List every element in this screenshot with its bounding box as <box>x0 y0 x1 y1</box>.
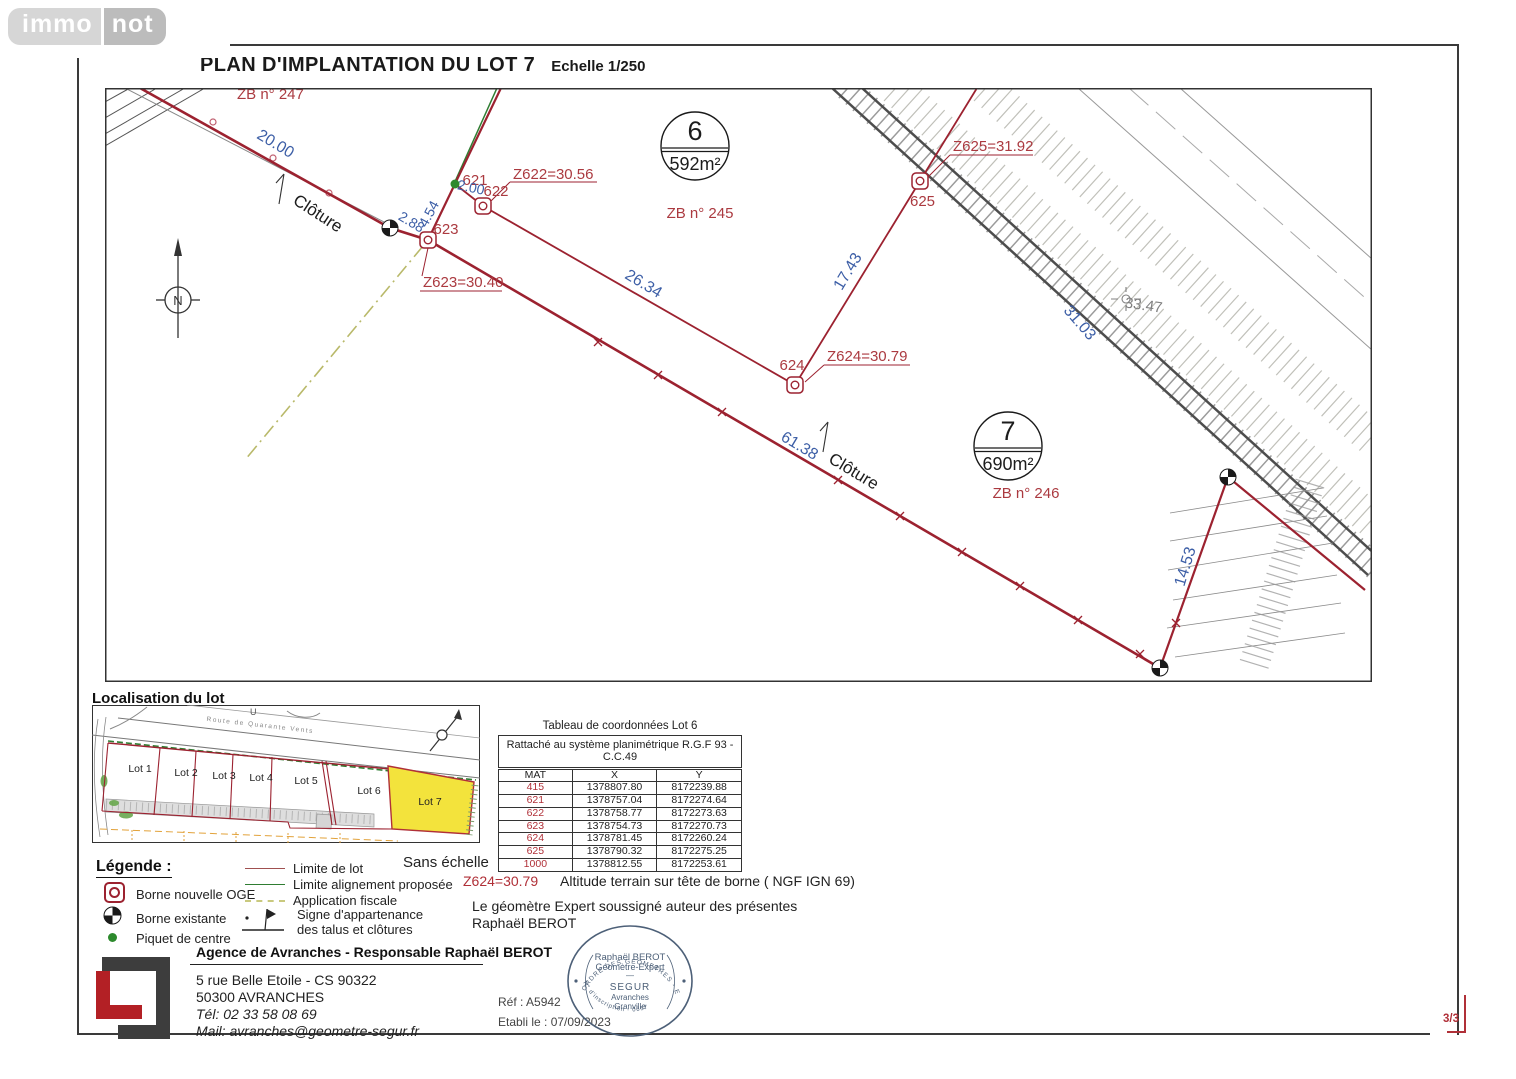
borne-oge-625 <box>912 173 928 189</box>
surveyor-name: Raphaël BEROT <box>472 915 576 931</box>
stamp-company: SEGUR <box>610 982 651 993</box>
page-number: 3/3 <box>1443 1013 1459 1025</box>
agency-title: Agence de Avranches - Responsable Raphaë… <box>196 944 552 960</box>
table-row: 6221378758.778172273.63 <box>499 807 742 820</box>
coordinate-system: Rattaché au système planimétrique R.G.F … <box>499 736 742 769</box>
surveyor-stamp: ORDRE DES GEOMETRES - EXPERTS N° d'inscr… <box>563 923 697 1041</box>
piquet-icon <box>108 933 117 942</box>
coordinate-table: Rattaché au système planimétrique R.G.F … <box>498 735 742 872</box>
legend-limite-align: Limite alignement proposée <box>293 877 453 892</box>
borne-oge-624 <box>787 377 803 393</box>
col-header-x: X <box>572 768 657 782</box>
agency-phone: Tél: 02 33 58 08 69 <box>196 1006 317 1022</box>
borne-existante-icon <box>103 906 122 925</box>
borne-nouvelle-icon <box>104 882 125 903</box>
agency-title-rule <box>190 964 483 965</box>
inset-u-label: U <box>250 707 257 717</box>
point-623-label: 623 <box>433 221 458 238</box>
table-row: 4151378807.808172239.88 <box>499 782 742 795</box>
lot7-badge: 7 690m² <box>974 412 1042 480</box>
title-main: PLAN D'IMPLANTATION DU LOT 7 <box>200 54 535 76</box>
legend-borne-existante: Borne existante <box>136 911 226 926</box>
table-row: 6251378790.328172275.25 <box>499 846 742 859</box>
stamp-city2: Granville <box>614 1002 646 1011</box>
point-622-label: 622 <box>483 183 508 200</box>
inset-lot7-label: Lot 7 <box>418 796 442 808</box>
zb245-label: ZB n° 245 <box>667 205 734 222</box>
altitude-ref: Z624=30.79 <box>463 873 538 889</box>
legend-block: Légende : Borne nouvelle OGE Borne exist… <box>92 856 522 948</box>
inset-lot3-label: Lot 3 <box>212 770 236 782</box>
borne-existante-2 <box>1152 660 1168 676</box>
z625-label: Z625=31.92 <box>953 138 1034 155</box>
point-624-label: 624 <box>779 357 804 374</box>
zb246-label: ZB n° 246 <box>993 485 1060 502</box>
zb247-label: ZB n° 247 <box>237 88 304 103</box>
inset-lot1-label: Lot 1 <box>128 763 152 775</box>
agency-address1: 5 rue Belle Etoile - CS 90322 <box>196 972 377 988</box>
application-fiscale-line-icon <box>245 900 285 902</box>
z622-label: Z622=30.56 <box>513 166 594 183</box>
page-title: PLAN D'IMPLANTATION DU LOT 7Echelle 1/25… <box>200 54 645 77</box>
borne-oge-622 <box>475 198 491 214</box>
logo-not: not <box>104 8 166 45</box>
stamp-city1: Avranches <box>611 993 649 1002</box>
main-plan: N 6 592m² 7 690m² ZB n° 247 ZB n° 245 Z <box>105 88 1372 682</box>
lot7-area: 690m² <box>982 454 1033 474</box>
lot7-number: 7 <box>1000 416 1015 446</box>
borne-existante-3 <box>1220 469 1236 485</box>
lot6-badge: 6 592m² <box>661 112 729 180</box>
page-corner-horizontal <box>1447 1031 1466 1033</box>
lot6-area: 592m² <box>669 154 720 174</box>
stamp-dash: — <box>626 971 634 980</box>
altitude-note: Altitude terrain sur tête de borne ( NGF… <box>560 873 855 889</box>
legend-heading: Légende : <box>96 858 172 878</box>
legend-app-fiscale: Application fiscale <box>293 893 397 908</box>
limite-alignement-line-icon <box>245 884 285 885</box>
inset-lot6-label: Lot 6 <box>357 785 381 797</box>
legend-signe-line2: des talus et clôtures <box>297 922 413 937</box>
frame-top <box>77 44 1458 46</box>
page-corner-vertical <box>1464 995 1466 1033</box>
legend-borne-nouvelle: Borne nouvelle OGE <box>136 887 255 902</box>
coordinate-table-block: Tableau de coordonnées Lot 6 Rattaché au… <box>498 720 742 872</box>
logo-immo: immo <box>8 8 101 45</box>
coordinate-table-title: Tableau de coordonnées Lot 6 <box>498 720 742 732</box>
frame-right <box>1457 44 1459 1035</box>
north-label: N <box>173 293 182 308</box>
inset-lot5-label: Lot 5 <box>294 775 318 787</box>
legend-limite-lot: Limite de lot <box>293 861 363 876</box>
surveyor-statement: Le géomètre Expert soussigné auteur des … <box>472 898 797 914</box>
z623-label: Z623=30.40 <box>423 274 504 291</box>
col-header-mat: MAT <box>499 768 573 782</box>
limite-lot-line-icon <box>245 868 285 869</box>
inset-plan: U Route de Quarante Vents Lot 1 Lot 2 Lo… <box>92 705 480 843</box>
lot6-number: 6 <box>687 116 702 146</box>
table-row: 6211378757.048172274.64 <box>499 795 742 808</box>
table-row: 6241378781.458172260.24 <box>499 833 742 846</box>
inset-lot4-label: Lot 4 <box>249 772 273 784</box>
immonot-logo: immo not <box>8 8 166 45</box>
segur-logo <box>96 957 170 1039</box>
table-row: 6231378754.738172270.73 <box>499 820 742 833</box>
signe-appartenance-icon <box>240 905 288 933</box>
agency-address2: 50300 AVRANCHES <box>196 989 324 1005</box>
plan-sheet: immo not PLAN D'IMPLANTATION DU LOT 7Ech… <box>0 0 1516 1079</box>
frame-left <box>77 44 79 1035</box>
reference-number: Réf : A5942 <box>498 995 561 1009</box>
inset-lot2-label: Lot 2 <box>174 767 198 779</box>
col-header-y: Y <box>657 768 742 782</box>
title-scale: Echelle 1/250 <box>551 58 645 75</box>
agency-mail: Mail: avranches@geometre-segur.fr <box>196 1023 419 1039</box>
borne-existante-1 <box>382 220 398 236</box>
table-row: 10001378812.558172253.61 <box>499 858 742 871</box>
point-625-label: 625 <box>910 193 935 210</box>
z624-label: Z624=30.79 <box>827 348 908 365</box>
legend-signe-line1: Signe d'appartenance <box>297 907 423 922</box>
